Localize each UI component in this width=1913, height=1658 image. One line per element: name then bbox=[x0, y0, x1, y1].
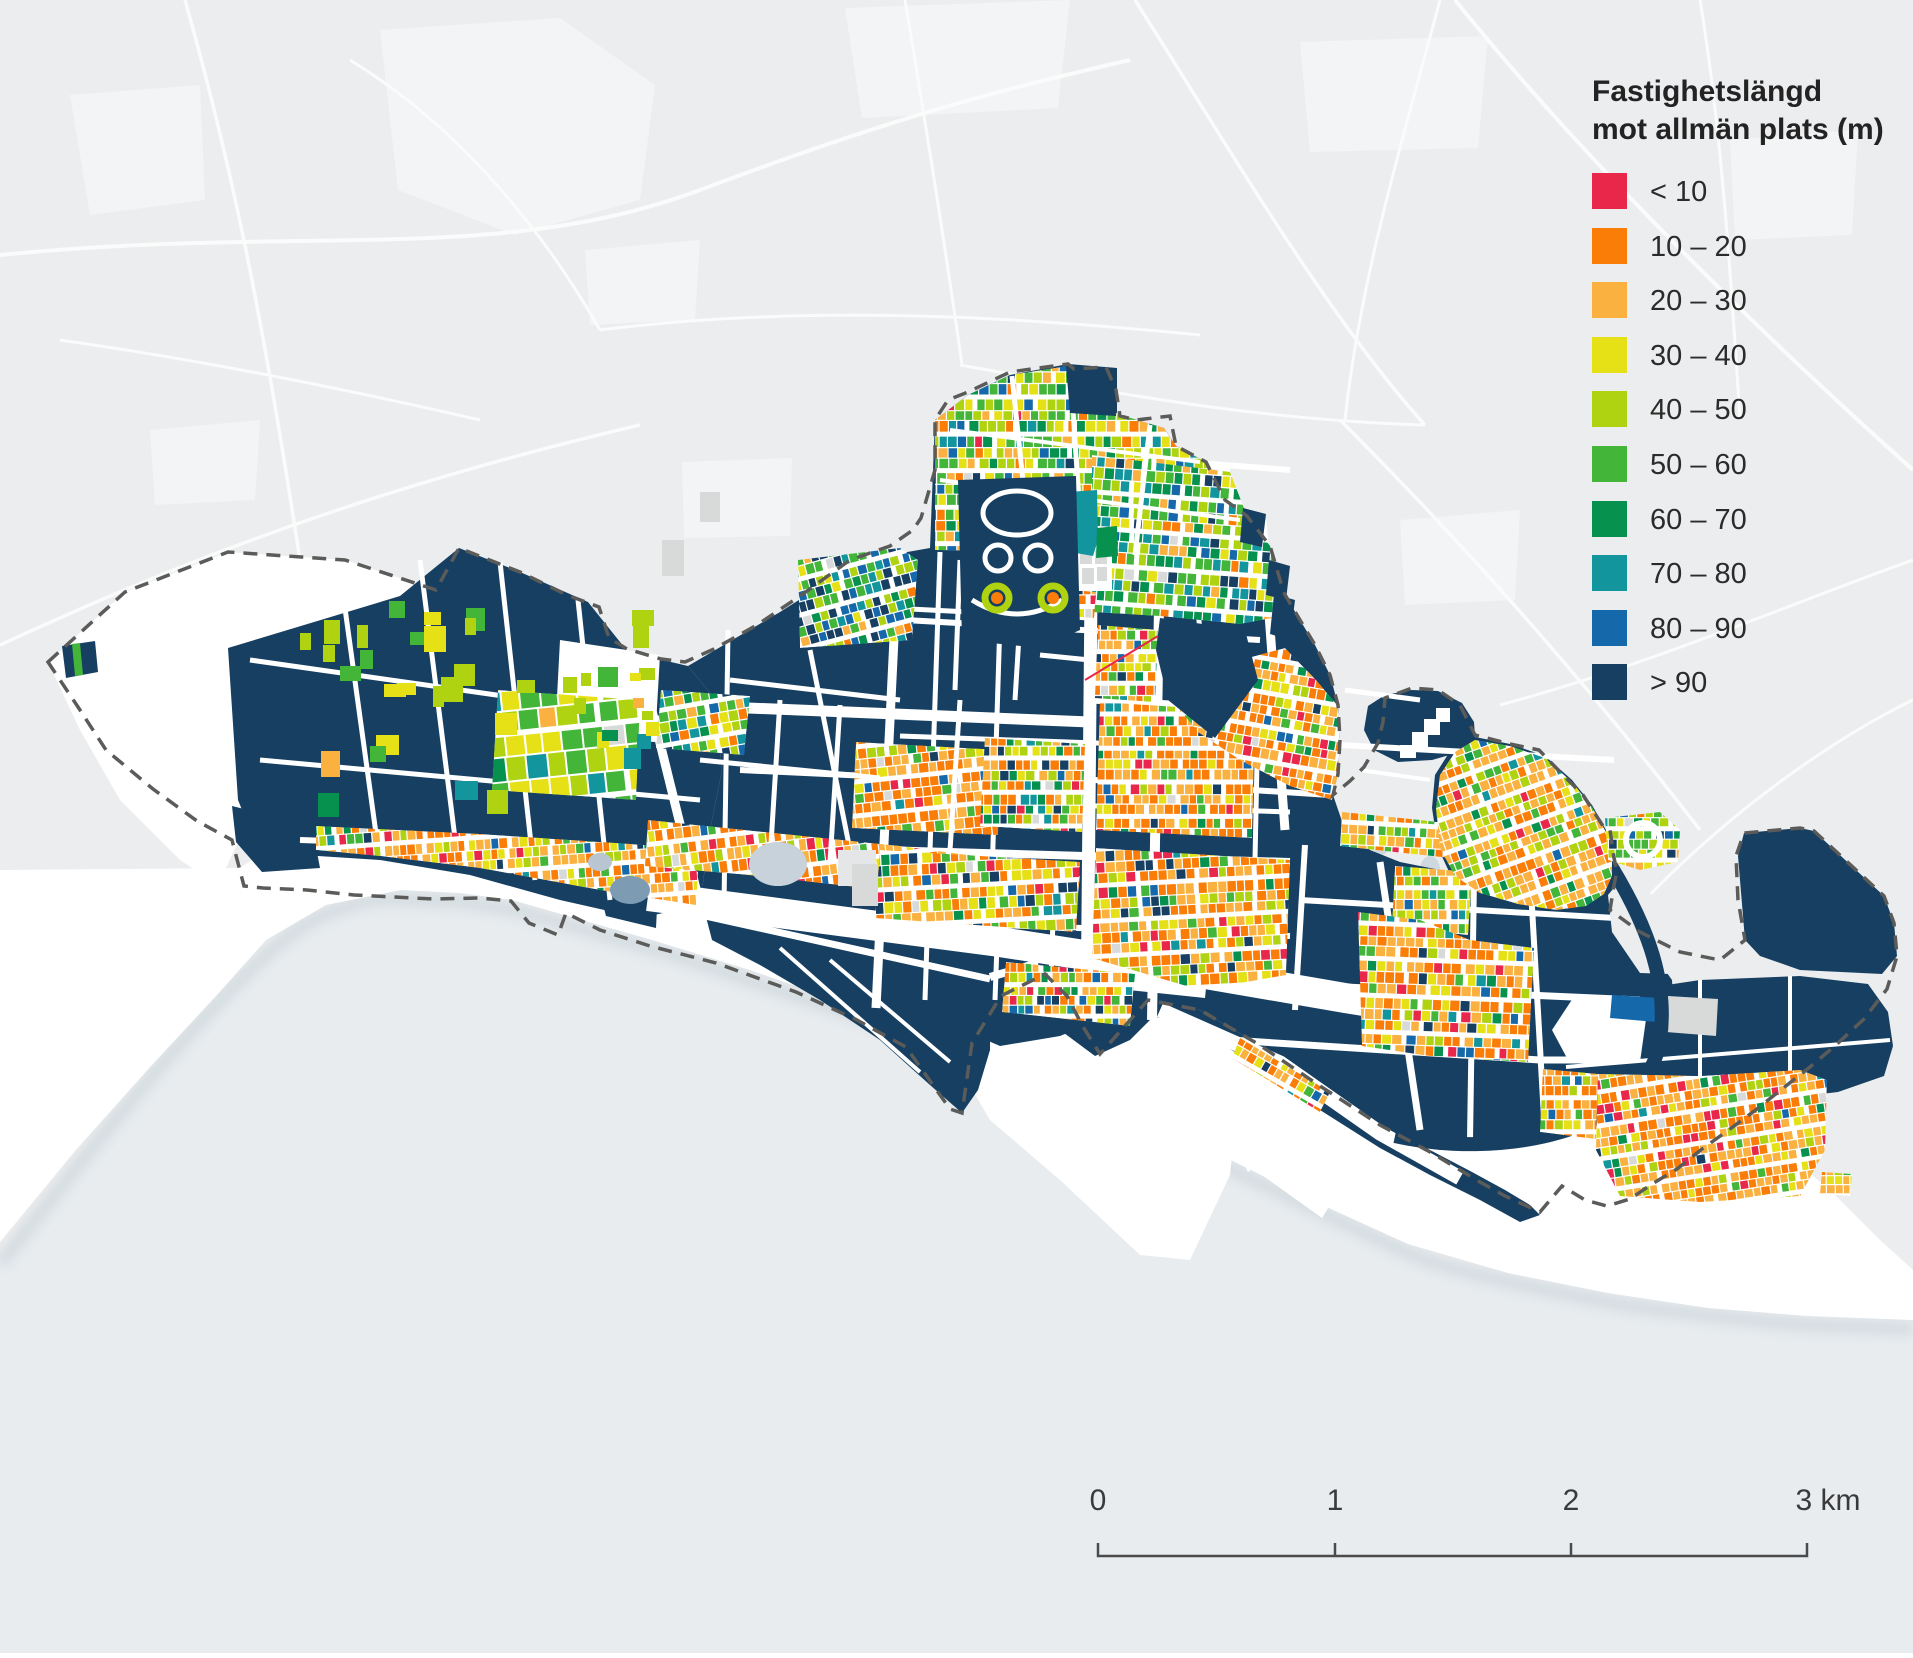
svg-text:2: 2 bbox=[1563, 1484, 1580, 1517]
svg-text:mot allmän plats (m): mot allmän plats (m) bbox=[1592, 113, 1884, 146]
svg-text:60 – 70: 60 – 70 bbox=[1650, 504, 1747, 536]
svg-text:1: 1 bbox=[1327, 1484, 1344, 1517]
svg-text:10 – 20: 10 – 20 bbox=[1650, 231, 1747, 263]
svg-text:Fastighetslängd: Fastighetslängd bbox=[1592, 75, 1822, 108]
svg-text:3 km: 3 km bbox=[1795, 1484, 1860, 1517]
svg-text:0: 0 bbox=[1090, 1484, 1107, 1517]
svg-text:50 – 60: 50 – 60 bbox=[1650, 449, 1747, 481]
svg-text:80 – 90: 80 – 90 bbox=[1650, 613, 1747, 645]
svg-text:40 – 50: 40 – 50 bbox=[1650, 394, 1747, 426]
svg-text:20 – 30: 20 – 30 bbox=[1650, 285, 1747, 317]
svg-text:< 10: < 10 bbox=[1650, 176, 1707, 208]
svg-text:> 90: > 90 bbox=[1650, 667, 1707, 699]
svg-text:30 – 40: 30 – 40 bbox=[1650, 340, 1747, 372]
svg-text:70 – 80: 70 – 80 bbox=[1650, 558, 1747, 590]
